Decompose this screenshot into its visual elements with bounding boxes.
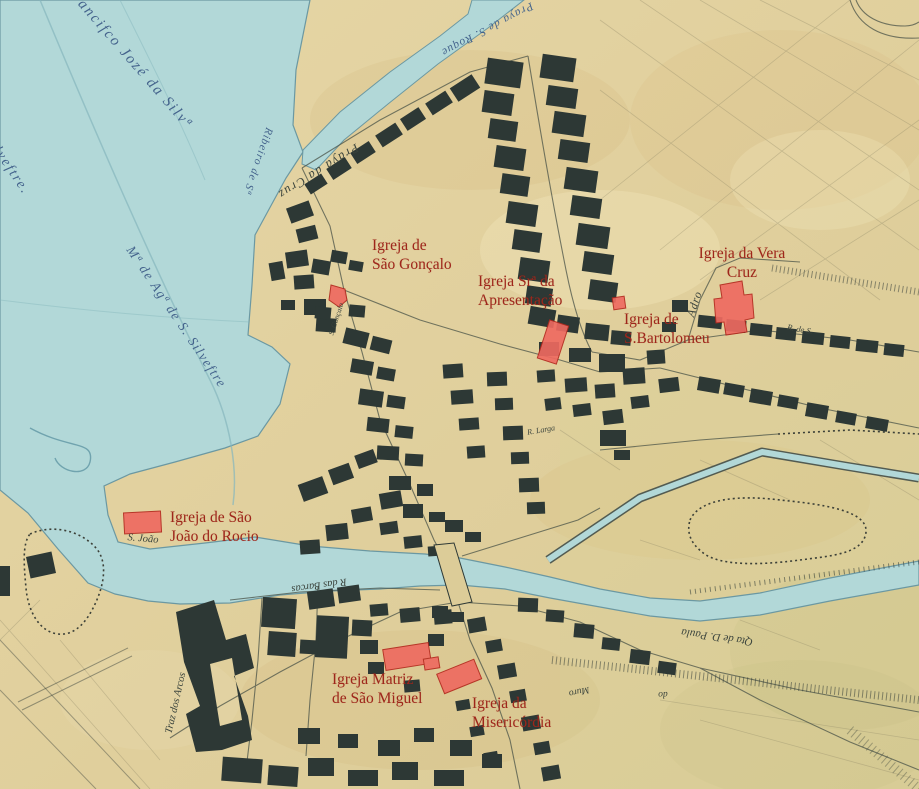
label-line: Igreja de São <box>170 508 259 527</box>
label-igreja-misericordia: Igreja da Misericórdia <box>472 694 551 732</box>
label-line: Apresentação <box>478 291 562 310</box>
label-line: Cruz <box>696 263 788 282</box>
label-line: São Gonçalo <box>372 255 452 274</box>
label-line: de São Miguel <box>332 689 422 708</box>
map-canvas <box>0 0 919 789</box>
historical-town-map: Igreja de São Gonçalo Igreja Srª da Apre… <box>0 0 919 789</box>
label-line: S.Bartolomeu <box>624 329 710 348</box>
label-line: Igreja Srª da <box>478 272 562 291</box>
church-matriz-annex <box>423 657 440 670</box>
label-igreja-vera-cruz: Igreja da Vera Cruz <box>696 244 788 282</box>
label-igreja-rocio: Igreja de São João do Rocio <box>170 508 259 546</box>
label-igreja-apresentacao: Igreja Srª da Apresentação <box>478 272 562 310</box>
label-do: do <box>658 689 668 699</box>
label-igreja-sao-goncalo: Igreja de São Gonçalo <box>372 236 452 274</box>
label-line: Igreja de <box>372 236 452 255</box>
label-line: Igreja da Vera <box>696 244 788 263</box>
label-line: Igreja da <box>472 694 551 713</box>
label-line: Igreja Matriz <box>332 670 422 689</box>
label-line: João do Rocio <box>170 527 259 546</box>
church-rocio-building <box>124 511 162 534</box>
label-line: Misericórdia <box>472 713 551 732</box>
label-igreja-matriz: Igreja Matriz de São Miguel <box>332 670 422 708</box>
church-bartolomeu-building <box>612 296 626 310</box>
